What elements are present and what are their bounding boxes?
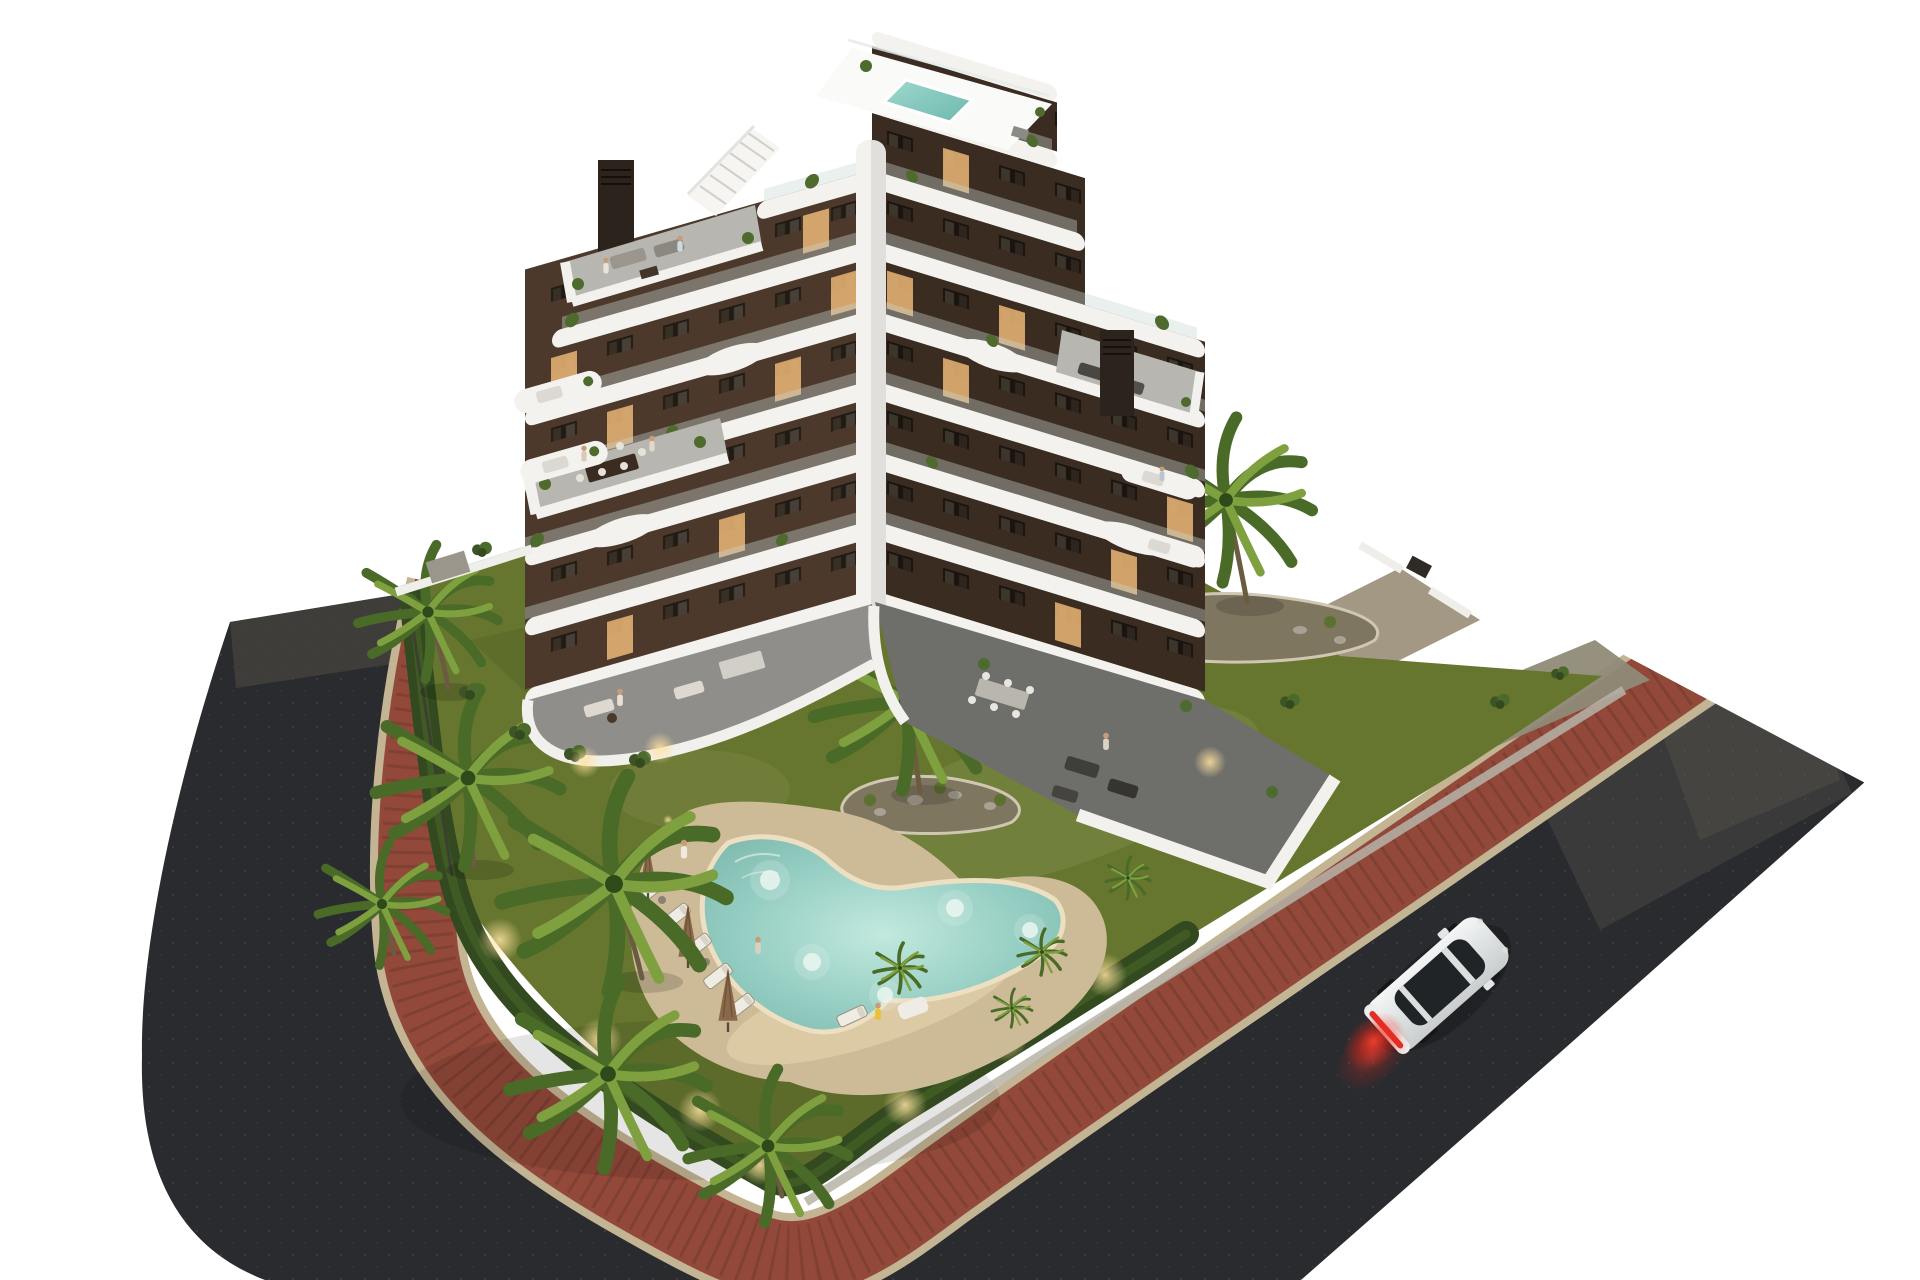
grass-tuft [1324,616,1336,628]
person [1103,733,1109,750]
chair [576,474,584,482]
person [603,258,608,274]
person [681,840,687,859]
chair [982,672,990,680]
person [677,236,682,252]
chimney [1100,330,1134,416]
rock [1293,626,1307,634]
person [617,689,623,706]
person [875,1003,881,1020]
lit-window [1055,602,1081,648]
person [1160,467,1165,481]
terrace-parapet [565,262,572,302]
chair [1012,710,1020,718]
person [649,436,654,452]
light-glow [569,746,601,778]
chair [598,468,606,476]
chair [968,696,976,704]
terrace-plant [694,436,706,448]
terrace-plant [978,658,990,670]
chair [990,703,998,711]
light-glow [644,732,676,764]
chair [1026,686,1034,694]
rock [874,808,886,816]
palm-shadow [1216,596,1284,616]
chair [616,442,624,450]
terrace-plant [1180,700,1192,712]
light-glow [478,918,522,962]
roof-plant [860,60,872,72]
chair [1004,679,1012,687]
architectural-render [0,0,1920,1280]
terrace-plant [572,278,584,290]
rock [1334,636,1346,644]
roof-plant [1035,107,1045,117]
terrace-parapet [1194,372,1200,414]
person [755,937,761,954]
terrace-plant [742,232,754,244]
chair [638,448,646,456]
terrace-plant [1181,397,1191,407]
terrace-plant [1266,786,1278,798]
palm-shadow [446,860,514,880]
person [581,446,586,462]
render-stage [0,0,1920,1280]
lit-window [607,615,633,660]
side-table [658,896,666,904]
grass-tuft [994,794,1006,806]
grass-tuft [864,794,876,806]
corner-shade [871,140,886,610]
chair [620,462,628,470]
rock [984,802,996,810]
light-glow [1194,746,1226,778]
patio-table [607,713,617,723]
